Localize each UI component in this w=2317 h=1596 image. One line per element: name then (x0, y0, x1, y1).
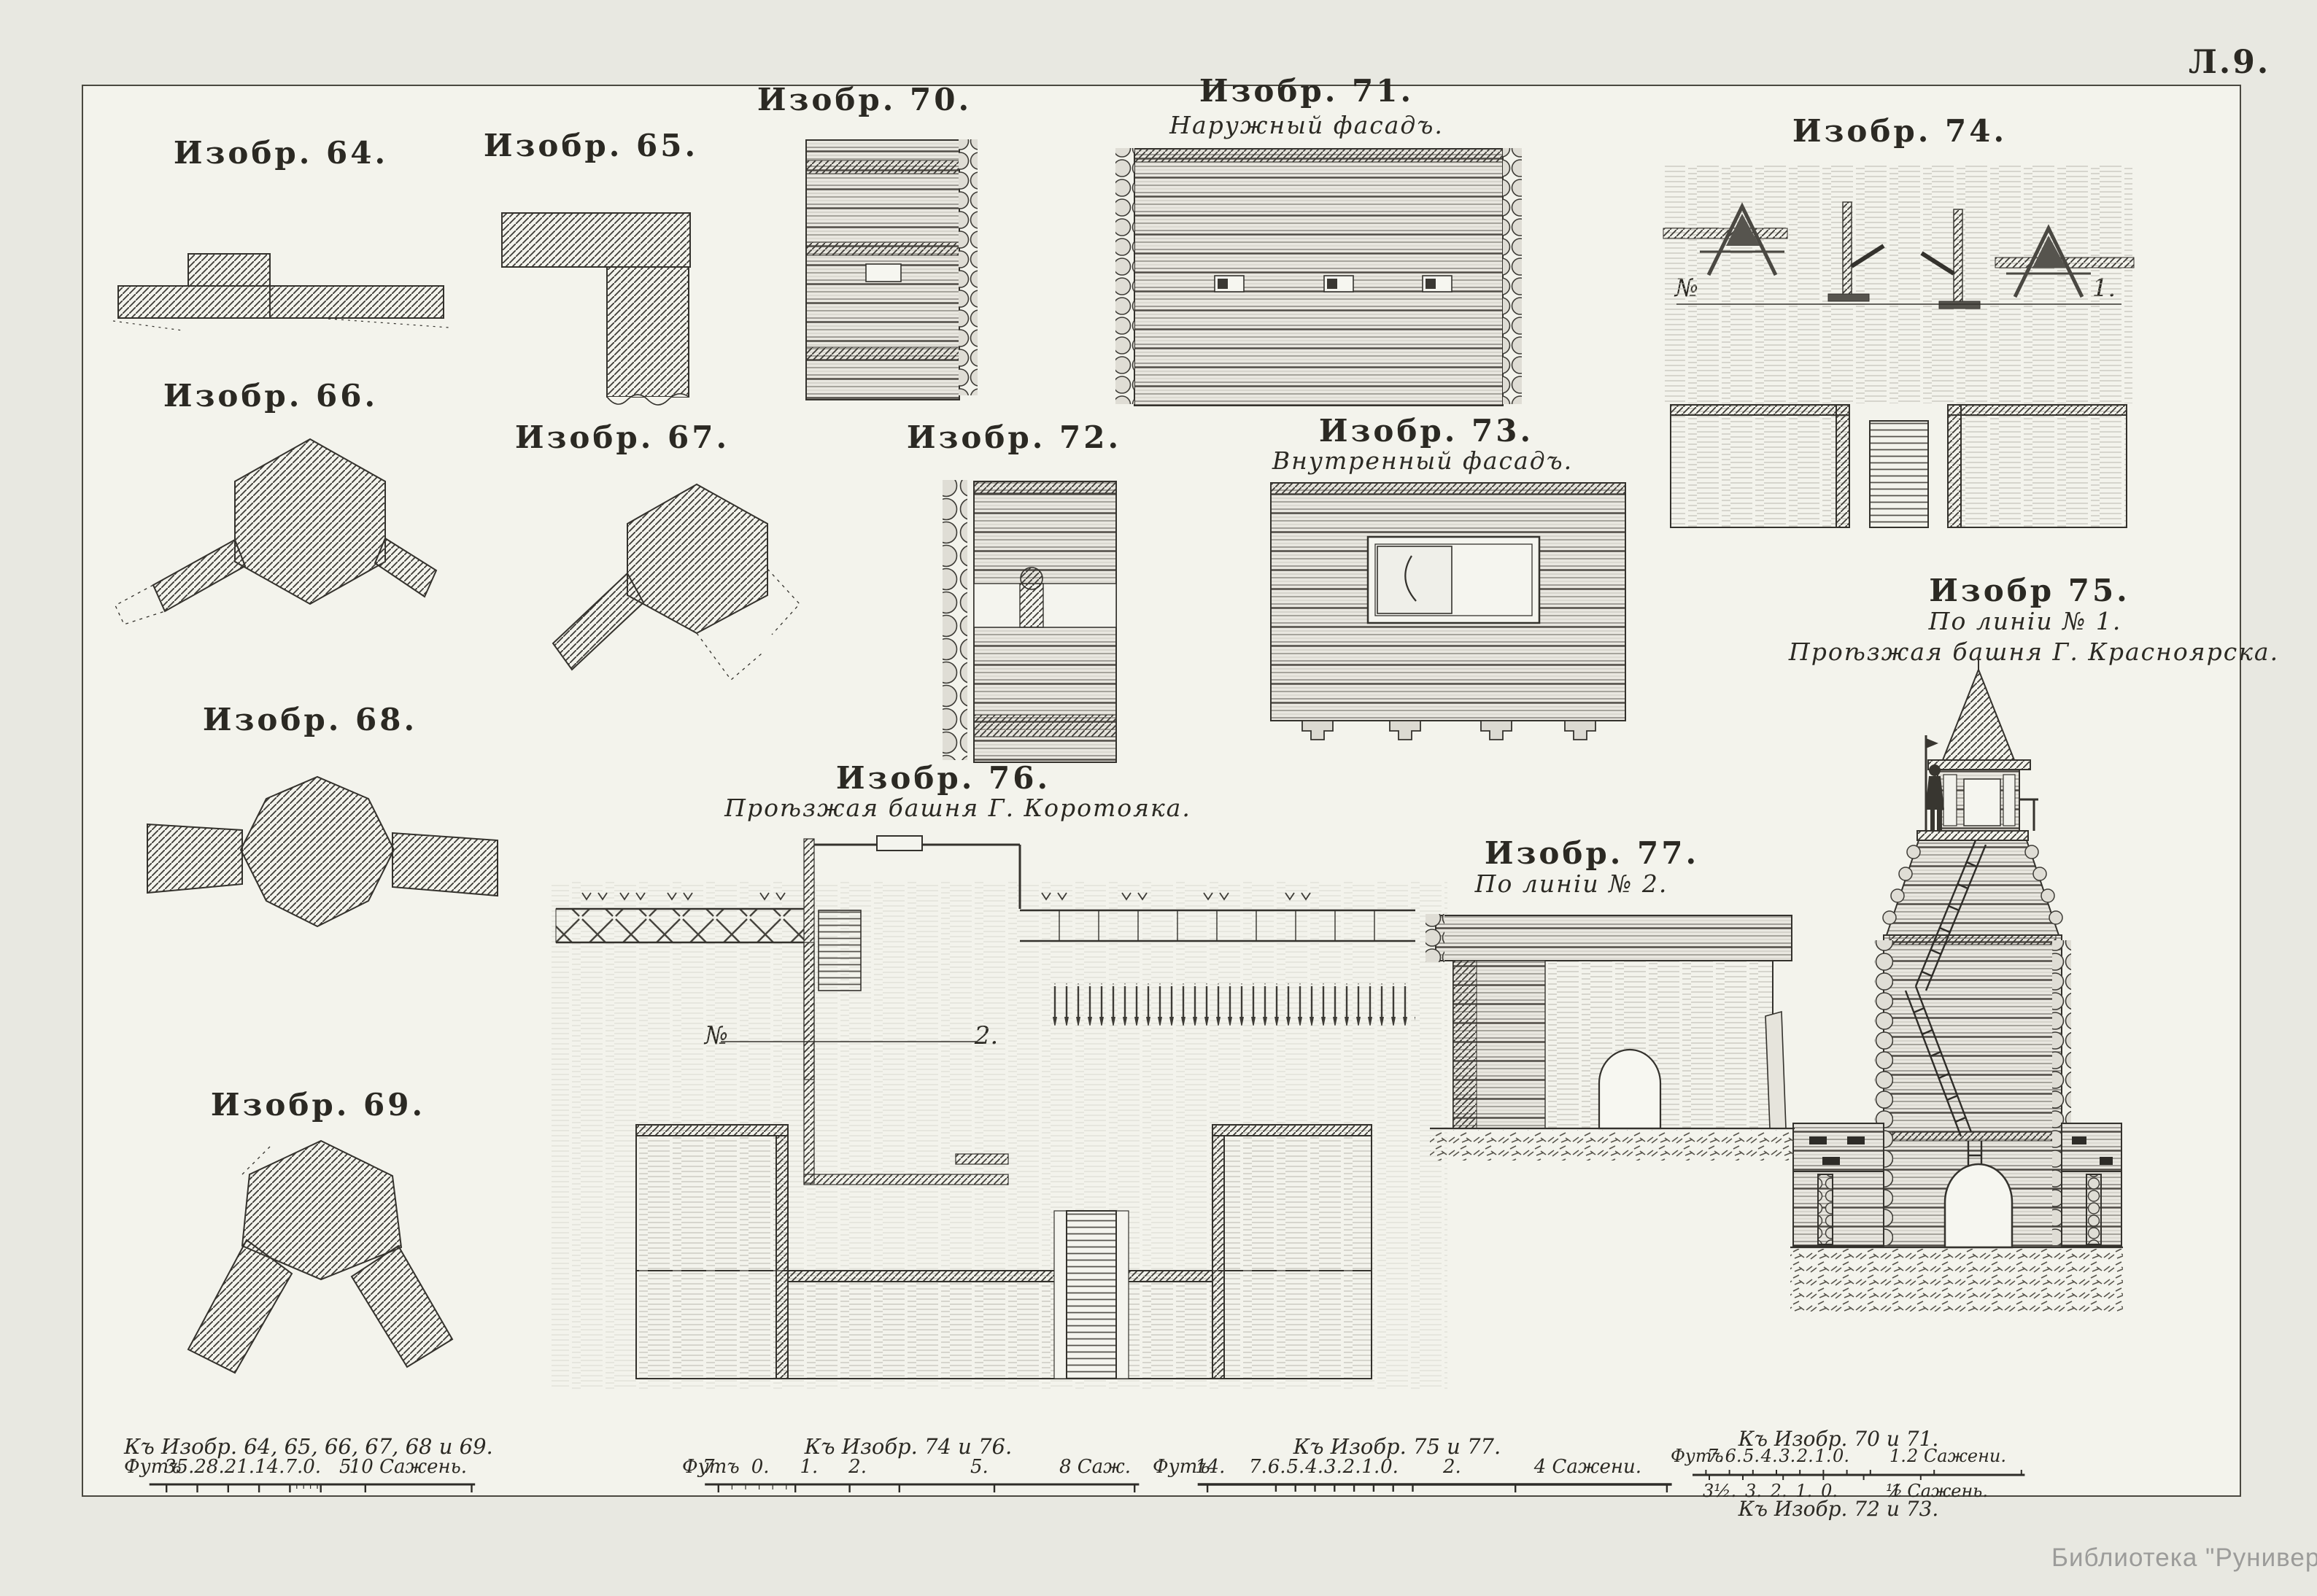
scale-tick: 1. (800, 1456, 818, 1478)
roof-logs (1436, 915, 1792, 961)
sheet-number: Л.9. (2189, 44, 2270, 81)
fig74-title: Изобр. 74. (1792, 113, 2007, 149)
scale-mid-tick: 1. (1889, 1446, 1906, 1466)
scale-title: Къ Изобр. 75 и 77. (1153, 1434, 1641, 1459)
scale-tick: 5. (1286, 1456, 1304, 1478)
scale-unit-right: 8 Саж. (1059, 1456, 1131, 1478)
scale-tick: 2. (848, 1456, 867, 1478)
scale-title: Къ Изобр. 72 и 73. (1671, 1497, 2006, 1521)
scale-ruler (146, 1481, 489, 1494)
scale-ruler (1193, 1481, 1682, 1494)
fig64-drawing (109, 248, 452, 343)
scale-tick: 21. (225, 1456, 255, 1478)
fig65-title: Изобр. 65. (484, 128, 698, 163)
scale-tick: 5. (1743, 1446, 1760, 1466)
scale-tick: 6. (1725, 1446, 1742, 1466)
spire (1943, 670, 2014, 760)
stairs (1067, 1211, 1116, 1379)
fig70-title: Изобр. 70. (757, 82, 972, 117)
scale-tick: 7. (703, 1456, 721, 1478)
fig68-drawing (139, 751, 503, 970)
fig71-drawing (1113, 139, 1525, 419)
fig77-title: Изобр. 77. (1485, 835, 1699, 871)
bottom-brackets (1302, 721, 1595, 740)
scale-title: Къ Изобр. 74 и 76. (682, 1434, 1134, 1459)
log-ends-left (943, 480, 967, 760)
fig68-title: Изобр. 68. (203, 702, 417, 737)
log-ends-right (1503, 148, 1522, 404)
fig72-drawing (934, 474, 1123, 770)
scale-tick: 4. (1761, 1446, 1778, 1466)
gate-arch (1599, 1050, 1660, 1128)
scale-ticks: 35.28.21.14.7.0. (164, 1456, 306, 1478)
library-credit: Библиотека "Руниверс" (2051, 1543, 2317, 1573)
scale-first-tick: 14. (1195, 1456, 1225, 1478)
stake-fringe (1049, 983, 1415, 1026)
fig75-drawing (1780, 656, 2130, 1386)
fig71-subtitle: Наружный фасадъ. (1169, 111, 1444, 139)
window-opening (1368, 537, 1539, 623)
log-ends-left (1115, 148, 1134, 404)
fig66-title: Изобр. 66. (163, 378, 378, 414)
fig74-drawing (1663, 164, 2134, 529)
scale-bar-75-77: Къ Изобр. 75 и 77. Футъ 14. 7.6.5.4.3.2.… (1153, 1434, 1641, 1501)
fig73-subtitle: Внутренный фасадъ. (1272, 446, 1573, 475)
scale-tick: 2. (1797, 1446, 1814, 1466)
scale-tick: 4. (1305, 1456, 1323, 1478)
ground (1790, 1249, 2123, 1312)
scale-unit-right: 4 Сажени. (1534, 1456, 1641, 1478)
fig67-title: Изобр. 67. (515, 419, 730, 455)
fig67-drawing (511, 460, 802, 693)
scale-tick: 3. (1779, 1446, 1795, 1466)
scale-unit-right: 2 Сажени. (1907, 1446, 2006, 1466)
fig76-drawing (547, 817, 1452, 1393)
scale-tick: 2. (1343, 1456, 1361, 1478)
scale-mid-tick: 2. (1443, 1456, 1461, 1478)
fig75-title: Изобр 75. (1929, 573, 2130, 608)
fig71-title: Изобр. 71. (1199, 73, 1414, 109)
fig64-title: Изобр. 64. (174, 135, 388, 171)
scale-tick: 0. (1380, 1456, 1399, 1478)
tower-stairs (819, 910, 861, 991)
scale-tick: 7. (1707, 1446, 1724, 1466)
scale-ticks: 7.0.1.2. (703, 1456, 867, 1478)
scale-unit-right: 10 Сажень. (349, 1456, 467, 1478)
scale-ruler (700, 1481, 1153, 1494)
fig77-subtitle: По линіи № 2. (1475, 869, 1668, 898)
fig73-drawing (1262, 474, 1634, 773)
fig69-title: Изобр. 69. (211, 1087, 425, 1123)
scale-tick: 3. (1324, 1456, 1342, 1478)
fig75-subtitle: По линіи № 1. (1929, 607, 2122, 635)
scale-bar-70-71-72-73: Къ Изобр. 70 и 71. Футъ 7.6.5.4.3.2.1.0.… (1671, 1427, 2006, 1517)
scale-tick: 14. (255, 1456, 285, 1478)
scale-tick: 7. (285, 1456, 303, 1478)
ground (1430, 1130, 1795, 1161)
scale-tick: 7. (1249, 1456, 1267, 1478)
palisade-truss (556, 909, 804, 942)
scale-tick: 1. (1814, 1446, 1831, 1466)
scale-tick: 28. (194, 1456, 224, 1478)
scale-bar-64-69: Къ Изобр. 64, 65, 66, 67, 68 и 69. Футъ … (124, 1434, 467, 1501)
log-ends-right (959, 139, 978, 395)
scale-ticks: 7.6.5.4.3.2.1.0. (1249, 1456, 1399, 1478)
fig65-drawing (496, 204, 708, 416)
scale-title: Къ Изобр. 64, 65, 66, 67, 68 и 69. (124, 1434, 467, 1459)
scale-ticks: 7.6.5.4.3.2.1.0. (1707, 1446, 1849, 1466)
gate-arch (1945, 1164, 2012, 1247)
scale-tick: 35. (164, 1456, 194, 1478)
stairs (1870, 421, 1928, 527)
scale-tick: 1. (1361, 1456, 1380, 1478)
fig72-title: Изобр. 72. (907, 419, 1121, 455)
scale-tick: 0. (751, 1456, 770, 1478)
fig77-drawing (1423, 908, 1802, 1163)
scale-mid-tick: 5. (970, 1456, 989, 1478)
fig70-drawing (799, 131, 989, 416)
fig69-drawing (160, 1131, 481, 1415)
scale-tick: 0. (303, 1456, 321, 1478)
scale-tick: 6. (1268, 1456, 1286, 1478)
fig66-drawing (102, 430, 438, 627)
scale-bar-74-76: Къ Изобр. 74 и 76. Футъ 7.0.1.2. 5. 8 Са… (682, 1434, 1134, 1501)
earthwork (1671, 405, 2127, 527)
scale-tick: 0. (1833, 1446, 1849, 1466)
